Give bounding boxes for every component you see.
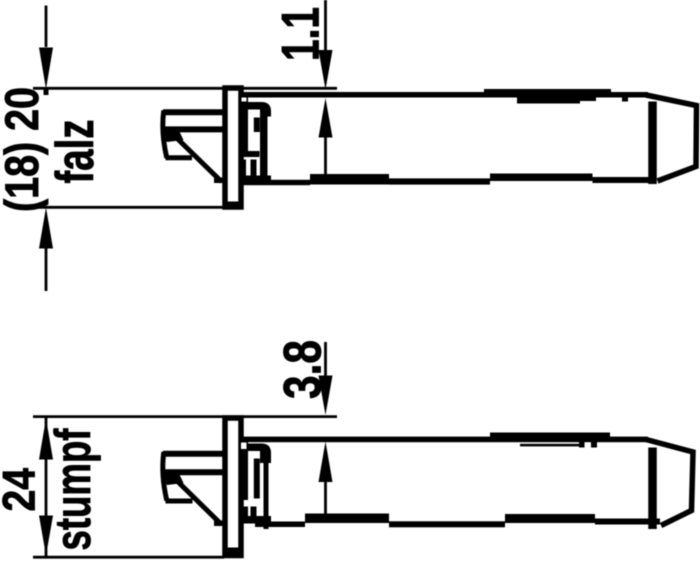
svg-text:(18) 20: (18) 20: [0, 87, 48, 212]
svg-text:stumpf: stumpf: [45, 428, 101, 550]
svg-text:falz: falz: [46, 120, 105, 184]
svg-text:24: 24: [0, 468, 45, 512]
